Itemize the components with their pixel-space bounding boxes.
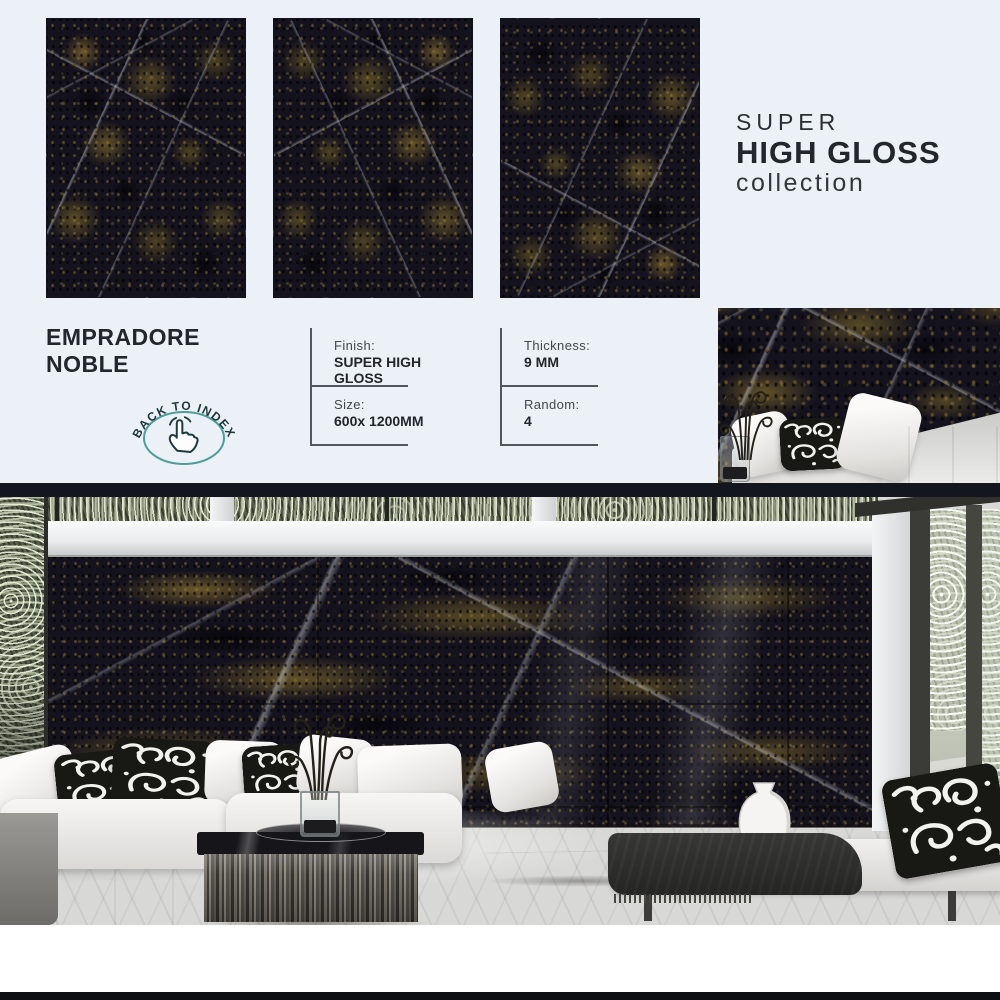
spec-finish: Finish: SUPER HIGH GLOSS [312,328,408,387]
damask-pillow [880,762,1000,881]
product-sheet: SUPER HIGH GLOSS collection EMPRADORE NO… [0,0,1000,483]
ceiling-beam [0,521,878,557]
spec-random: Random: 4 [502,387,598,446]
window-mullion [712,497,716,521]
tile-swatch-1 [46,18,246,298]
spec-random-label: Random: [524,397,598,412]
collection-title-line1: SUPER [736,110,941,134]
spec-size-label: Size: [334,397,408,412]
bottom-black-bar [0,992,1000,1000]
window-post [210,497,234,523]
collection-title: SUPER HIGH GLOSS collection [736,110,941,196]
back-to-index-graphic: BACK TO INDEX [128,384,240,468]
back-to-index-button[interactable]: BACK TO INDEX [128,384,240,468]
spec-thickness-label: Thickness: [524,338,598,353]
spec-thickness-value: 9 MM [524,354,616,370]
product-name: EMPRADORE NOBLE [46,324,256,378]
collection-title-line2: HIGH GLOSS [736,137,941,170]
glass-vase [300,791,340,837]
bed-pillow-white [483,740,561,815]
gray-throw-blanket [608,833,862,895]
spec-box-thickness-random: Thickness: 9 MM Random: 4 [500,328,598,446]
clerestory-windows [0,497,878,521]
thumbnail-damask-pillow [779,416,848,471]
spec-finish-label: Finish: [334,338,408,353]
sofa-arm-left [0,813,58,925]
tap-hand-icon [170,417,198,452]
collection-title-line3: collection [736,170,941,196]
window-mullion [385,497,389,521]
ceiling-dark-band [0,483,1000,497]
tile-swatch-3 [500,18,700,298]
spec-box-finish-size: Finish: SUPER HIGH GLOSS Size: 600x 1200… [310,328,408,446]
thumbnail-mattress [866,426,1000,483]
driftwood-table-base [204,854,418,922]
room-scene [0,483,1000,925]
spec-finish-value: SUPER HIGH GLOSS [334,354,426,386]
spec-random-value: 4 [524,413,616,429]
daybed-leg [948,887,956,921]
catalog-page: SUPER HIGH GLOSS collection EMPRADORE NO… [0,0,1000,1000]
spec-size-value: 600x 1200MM [334,413,426,429]
room-thumbnail [718,308,1000,483]
window-post [532,497,556,523]
window-mullion [55,497,59,521]
spec-size: Size: 600x 1200MM [312,387,408,446]
spec-thickness: Thickness: 9 MM [502,328,598,387]
tile-swatch-2 [273,18,473,298]
twig-branches-icon [262,688,378,800]
bottom-white-margin [0,925,1000,992]
twig-branches-icon [718,370,786,460]
